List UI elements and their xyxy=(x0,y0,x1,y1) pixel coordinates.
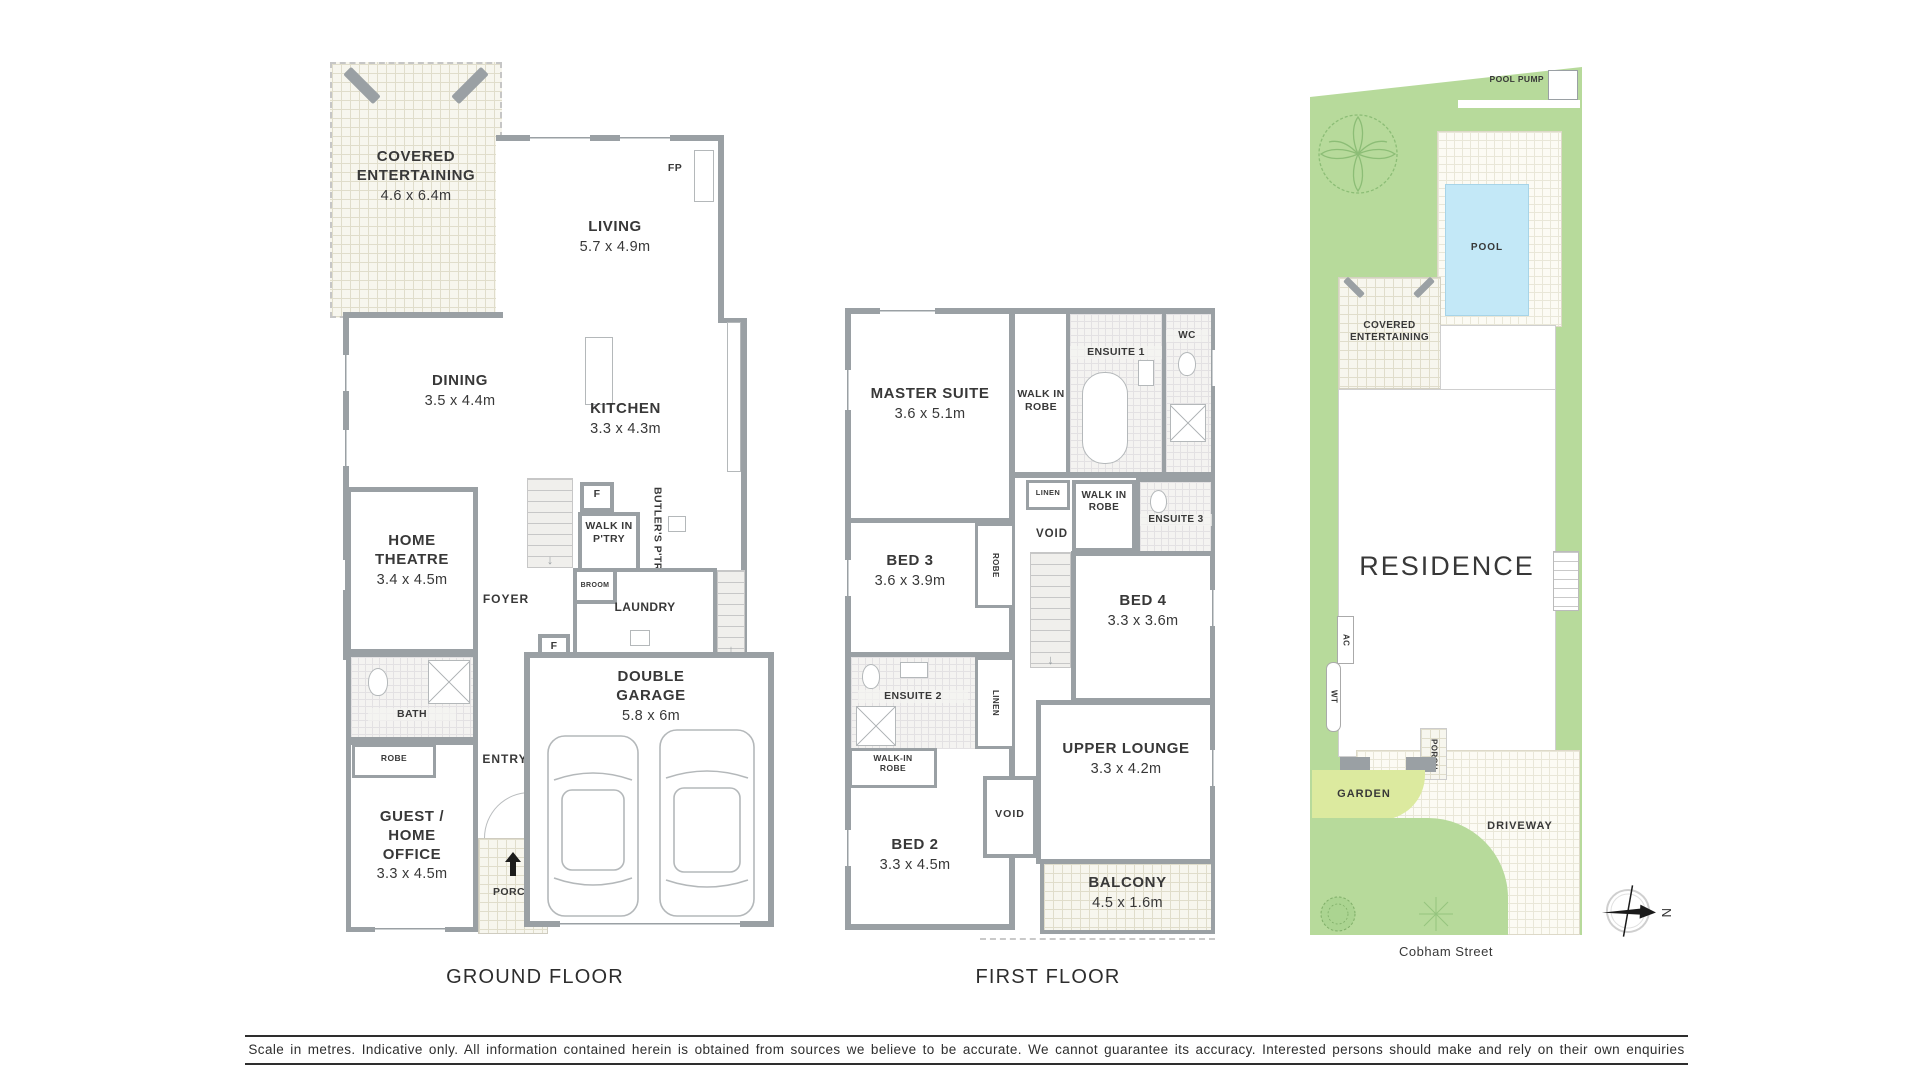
decor xyxy=(1424,914,1436,926)
fence-line xyxy=(1458,100,1580,108)
driveway-label: DRIVEWAY xyxy=(1450,820,1590,833)
wt-label: WT xyxy=(1326,668,1341,726)
decor xyxy=(1436,914,1448,926)
garden-label: GARDEN xyxy=(1314,788,1414,801)
disclaimer-text: Scale in metres. Indicative only. All in… xyxy=(245,1035,1688,1065)
street-label: Cobham Street xyxy=(1378,944,1514,960)
first-floor-title: FIRST FLOOR xyxy=(948,966,1148,989)
compass-icon: N xyxy=(1598,882,1684,942)
decor xyxy=(1424,902,1436,914)
site-plan: POOL PUMP POOL COVERED ENTERTAINING RESI… xyxy=(0,0,1920,1073)
ground-floor-title: GROUND FLOOR xyxy=(430,966,640,989)
site-stairs xyxy=(1553,551,1579,611)
compass-north-label: N xyxy=(1659,908,1674,917)
site-covered-entertaining-label: COVERED ENTERTAINING xyxy=(1340,320,1439,344)
residence-label: RESIDENCE xyxy=(1356,550,1538,582)
decor xyxy=(1353,154,1362,191)
ac-label: AC xyxy=(1337,620,1354,660)
residence-upper xyxy=(1440,325,1556,393)
decor xyxy=(1358,149,1395,158)
pool-label: POOL xyxy=(1445,242,1529,254)
floorplan-page: COVERED ENTERTAINING 4.6 x 6.4m FP LIVIN… xyxy=(0,0,1920,1073)
decor xyxy=(1321,149,1358,158)
decor xyxy=(1319,115,1397,193)
bush-icons xyxy=(1316,888,1466,940)
decor xyxy=(1419,897,1453,931)
pool-pump-label: POOL PUMP xyxy=(1488,74,1544,84)
pool-pump-box xyxy=(1548,70,1578,100)
decor xyxy=(1321,897,1355,931)
decor xyxy=(1353,117,1362,154)
tree-icon xyxy=(1313,112,1403,198)
decor xyxy=(1436,902,1448,914)
